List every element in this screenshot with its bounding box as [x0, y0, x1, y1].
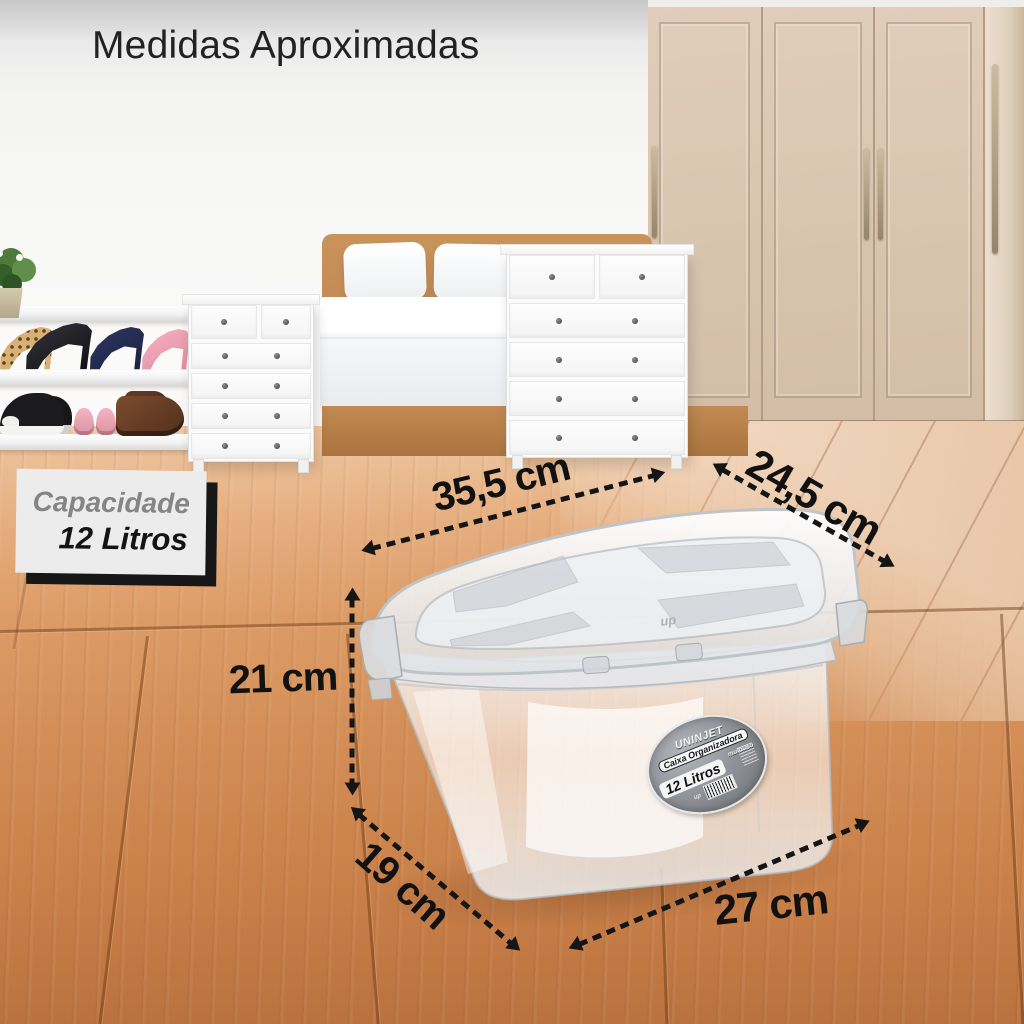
- wardrobe-handle: [864, 148, 869, 240]
- wardrobe-door: [875, 6, 985, 424]
- drawer: [509, 381, 685, 416]
- dresser-top: [500, 244, 694, 255]
- bed-pillow: [343, 242, 427, 303]
- wardrobe-handle: [992, 64, 998, 254]
- pink-kids-shoe: [74, 408, 94, 435]
- ceiling-strip: [648, 0, 1024, 7]
- wardrobe-door: [763, 6, 875, 424]
- lid-clip: [582, 656, 609, 674]
- shoe-rack-shelf: [0, 370, 192, 385]
- drawer: [191, 373, 311, 399]
- wardrobe-side-panel: [985, 6, 1024, 424]
- drawer: [261, 305, 311, 339]
- capacity-badge-label: Capacidade: [24, 486, 198, 520]
- dresser-small: [188, 302, 314, 462]
- drawer: [509, 303, 685, 338]
- capacity-badge: Capacidade 12 Litros: [15, 469, 206, 576]
- potted-plant: [0, 248, 44, 320]
- box-latch-left-tab: [368, 678, 392, 700]
- box-latch-right: [836, 600, 867, 646]
- drawer: [191, 343, 311, 369]
- label-fineprint: [736, 741, 759, 766]
- dresser-large: [506, 252, 688, 458]
- wardrobe-handle: [652, 146, 657, 238]
- wardrobe: [648, 6, 1024, 424]
- dresser-leg: [671, 455, 682, 469]
- drawer: [509, 420, 685, 455]
- product-measurement-scene: up UNINJET Caixa Organizadora multiuso 1…: [0, 0, 1024, 1024]
- dresser-leg: [298, 459, 309, 473]
- drawer: [509, 255, 595, 299]
- drawer: [191, 305, 257, 339]
- wardrobe-handle: [878, 148, 883, 240]
- label-logo: up: [693, 792, 702, 800]
- drawer: [191, 403, 311, 429]
- pink-kids-shoe: [96, 408, 116, 435]
- capacity-badge-value: 12 Litros: [24, 520, 198, 558]
- lid-logo: up: [659, 612, 677, 629]
- plant-flower: [16, 254, 23, 261]
- box-latch-left: [359, 616, 402, 680]
- drawer: [509, 342, 685, 377]
- drawer: [599, 255, 685, 299]
- shoe-rack-shelf: [0, 434, 196, 450]
- dresser-top: [182, 294, 320, 305]
- arrow-box-height: [350, 599, 355, 785]
- plant-pot: [0, 288, 24, 318]
- lid-clip: [675, 643, 702, 661]
- dim-label-box-height: 21 cm: [228, 655, 338, 704]
- page-title: Medidas Aproximadas: [92, 24, 480, 68]
- drawer: [191, 433, 311, 459]
- brown-oxford-shoe: [116, 396, 184, 436]
